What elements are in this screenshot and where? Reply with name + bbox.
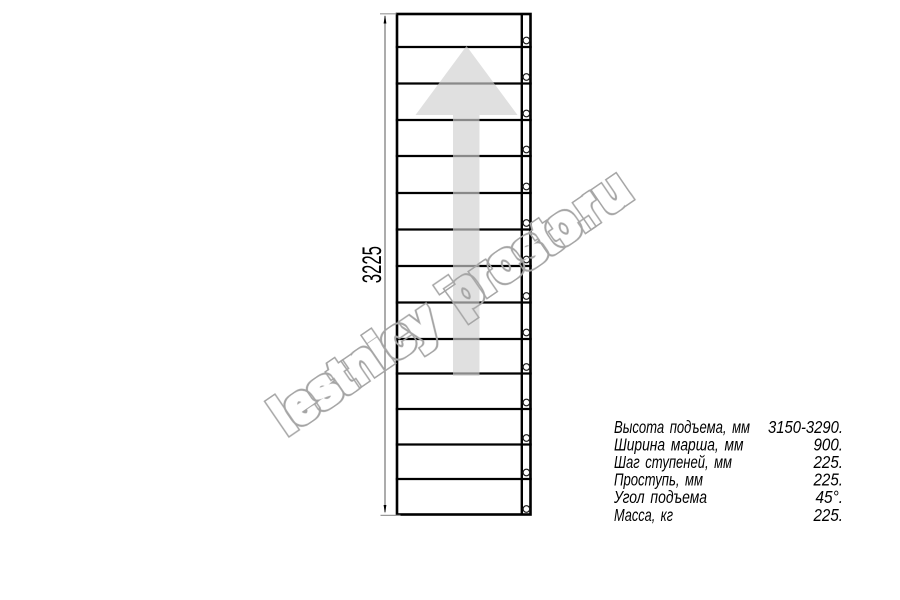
svg-text:Масса, кг: Масса, кг	[614, 505, 673, 525]
svg-text:3225: 3225	[357, 246, 387, 283]
svg-text:225.: 225.	[813, 505, 843, 525]
